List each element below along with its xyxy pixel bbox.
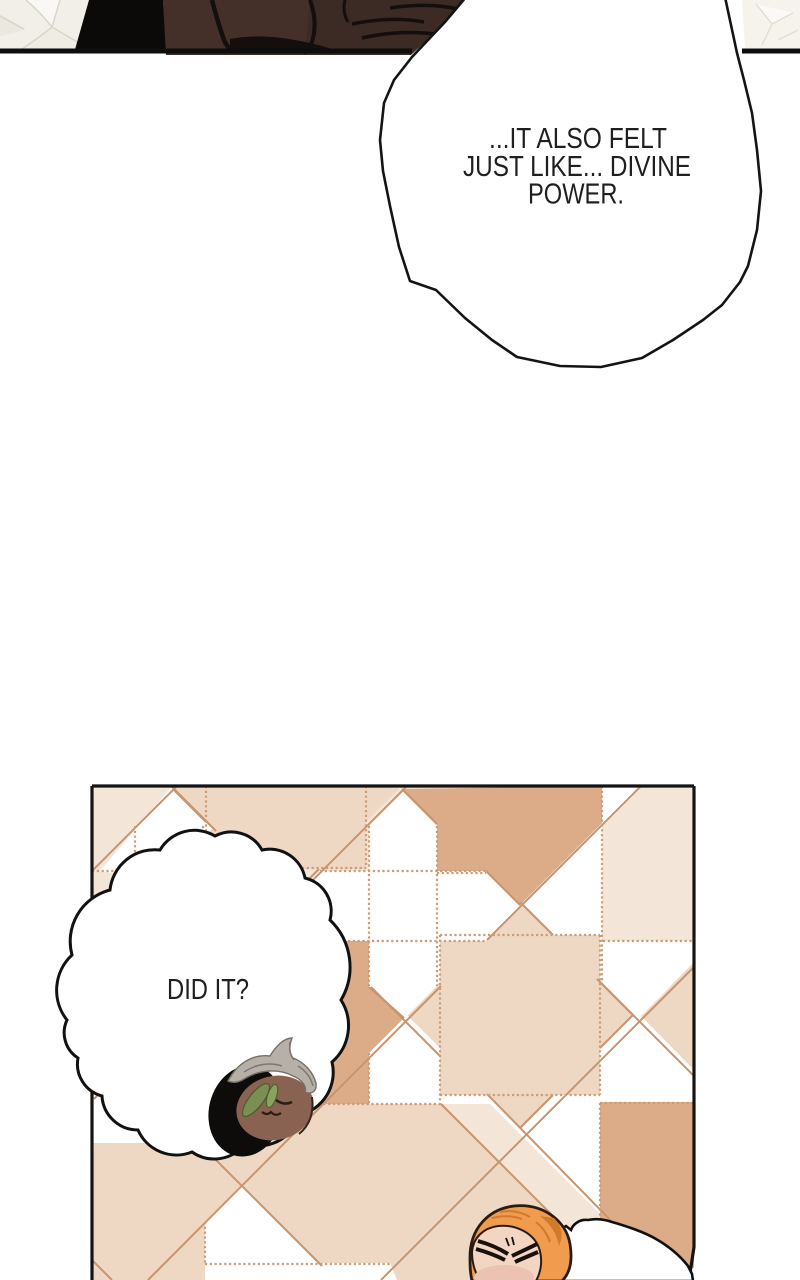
svg-text:DID IT?: DID IT? <box>167 974 249 1006</box>
svg-text:POWER.: POWER. <box>528 179 624 211</box>
